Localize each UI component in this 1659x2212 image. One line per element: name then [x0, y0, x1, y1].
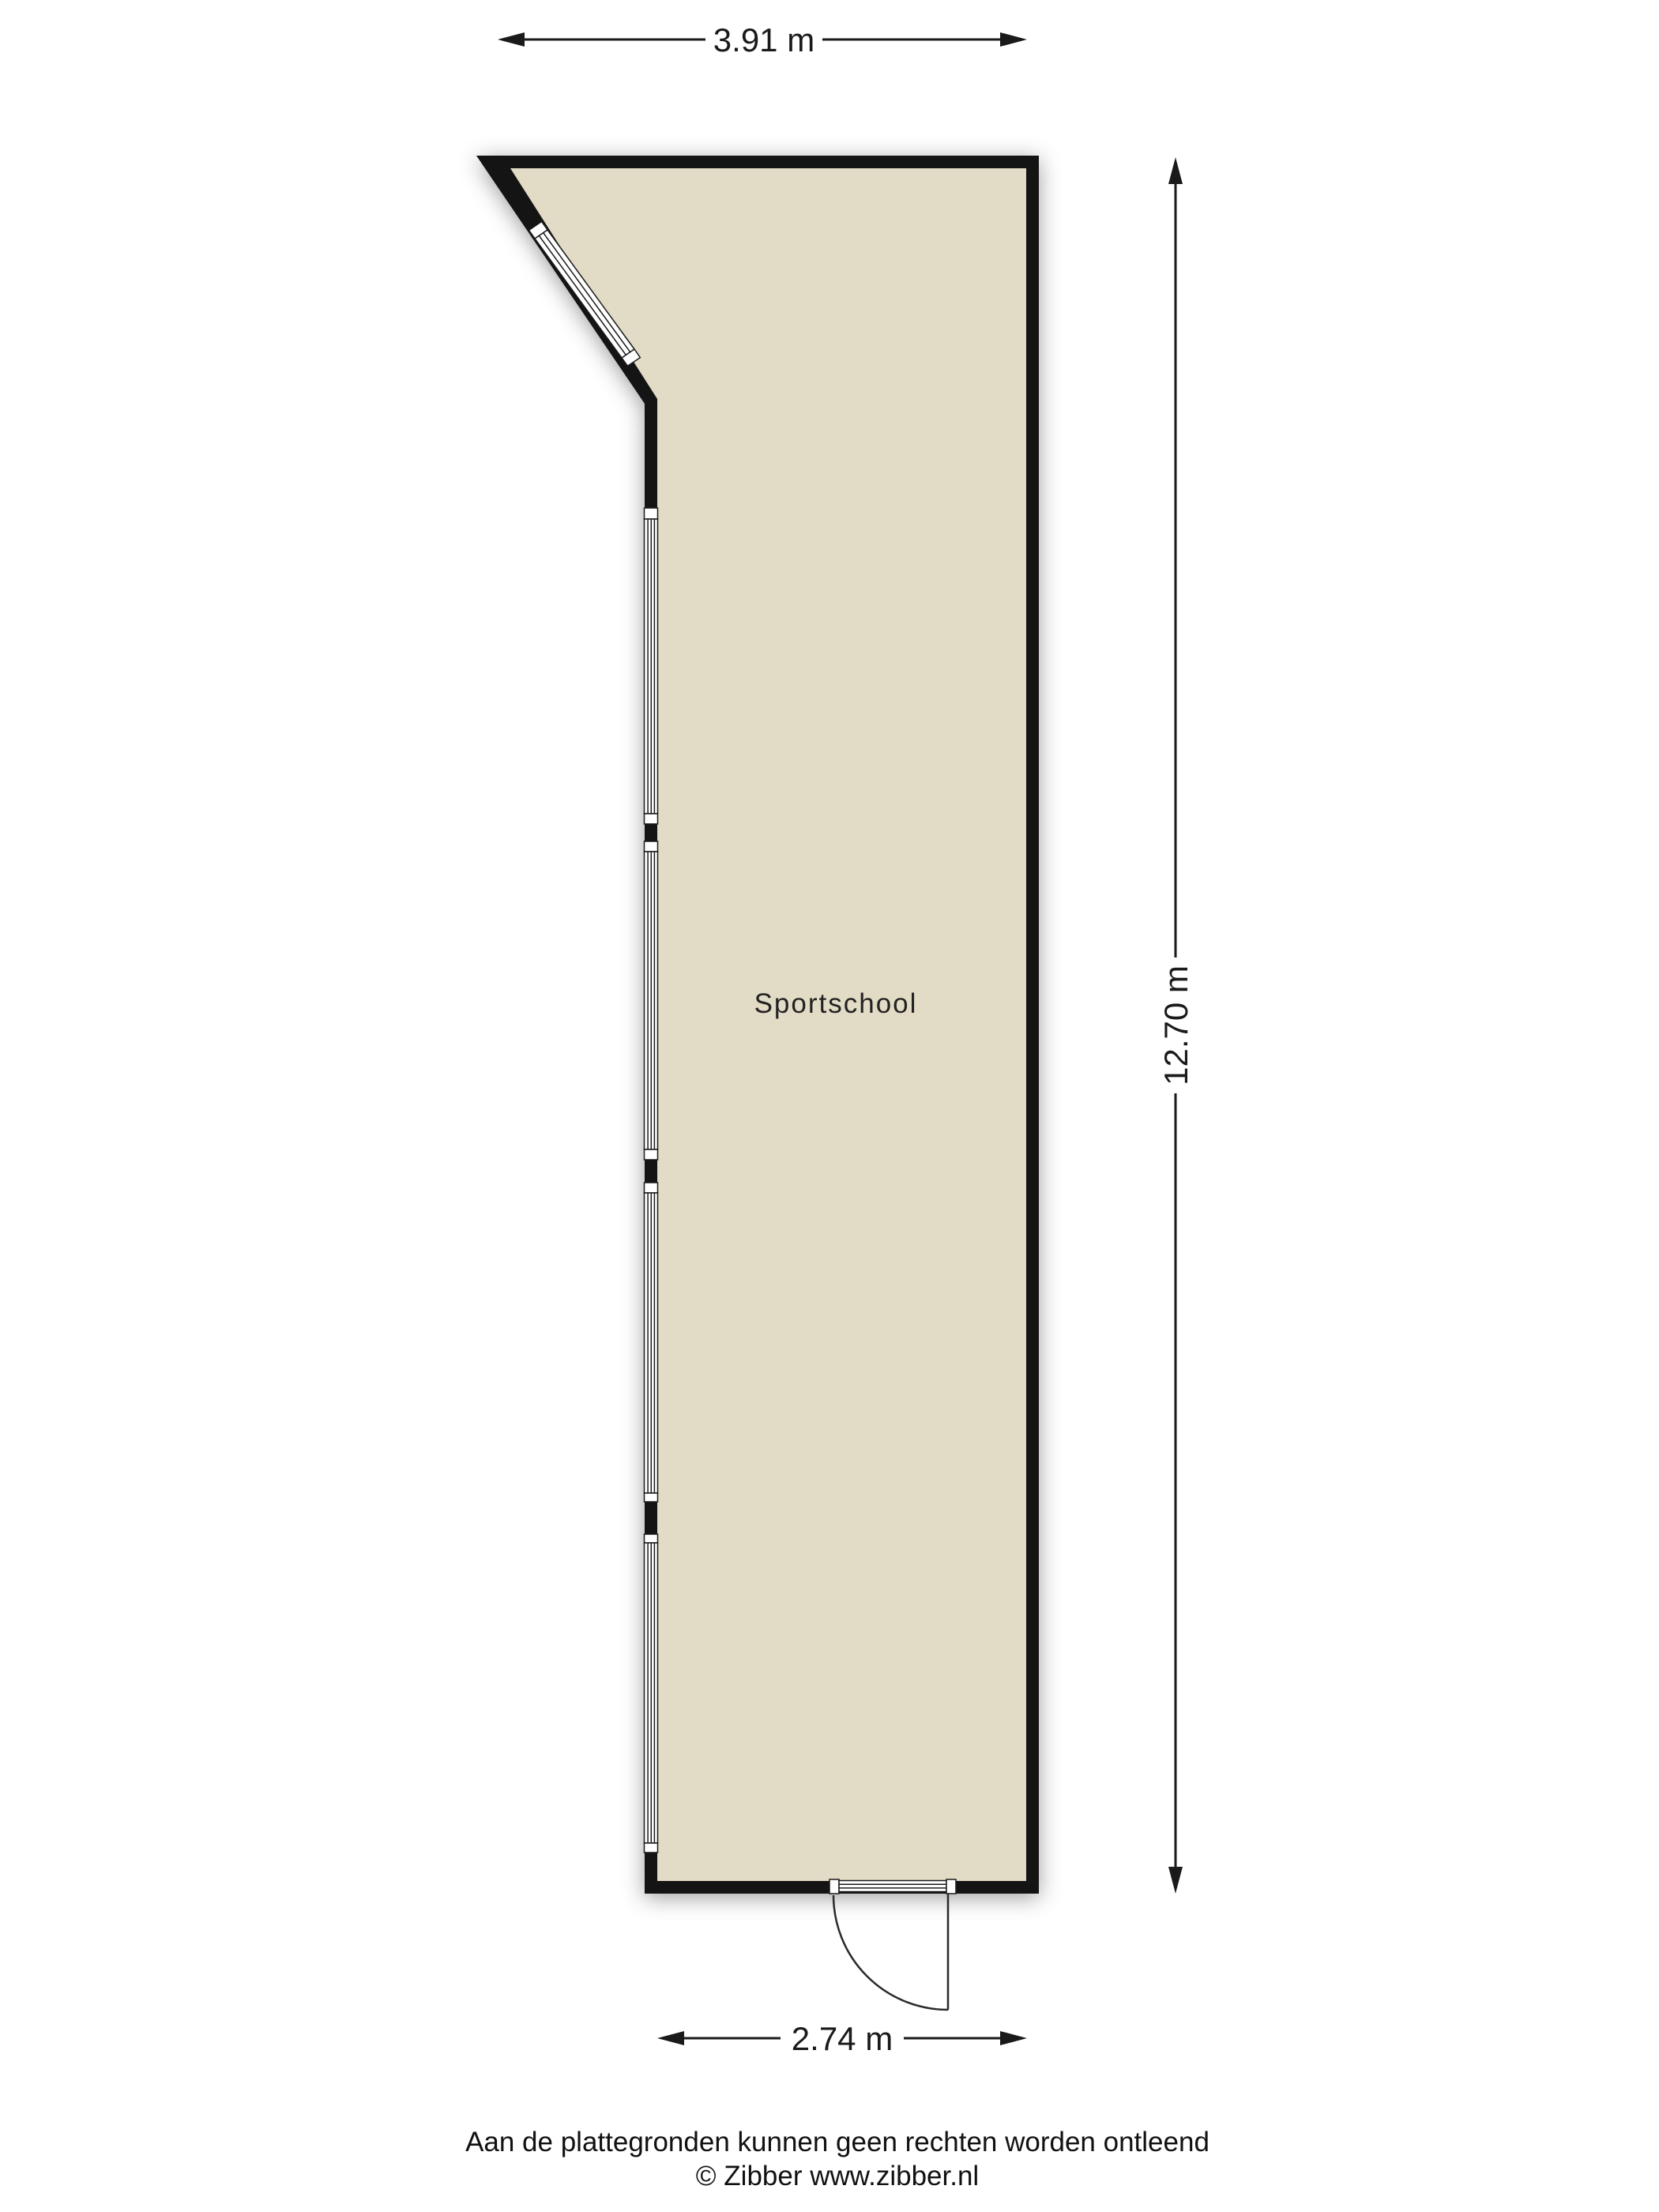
floorplan-page: Sportschool 3.91 m 12.70 m 2.74 m	[0, 0, 1659, 2212]
dimension-top-label: 3.91 m	[713, 21, 814, 58]
entrance-door	[829, 1879, 956, 2010]
door-swing-arc	[833, 1895, 948, 2010]
dimension-right-label: 12.70 m	[1157, 965, 1194, 1085]
window-left-3	[645, 1183, 658, 1502]
window-left-4	[645, 1534, 658, 1853]
window-left-2	[645, 841, 658, 1160]
arrowhead-left-icon	[498, 32, 525, 47]
dimension-top: 3.91 m	[498, 21, 1027, 58]
window-left-1	[645, 508, 658, 824]
dimension-bottom-label: 2.74 m	[792, 2020, 893, 2057]
footer-disclaimer: Aan de plattegronden kunnen geen rechten…	[465, 2127, 1209, 2157]
arrowhead-left-icon	[657, 2031, 684, 2045]
room-label: Sportschool	[754, 988, 918, 1019]
arrowhead-down-icon	[1168, 1867, 1183, 1894]
door-post-right	[946, 1879, 956, 1894]
arrowhead-up-icon	[1168, 157, 1183, 184]
footer: Aan de plattegronden kunnen geen rechten…	[465, 2127, 1209, 2191]
footer-copyright: © Zibber www.zibber.nl	[696, 2161, 979, 2191]
arrowhead-right-icon	[1000, 2031, 1027, 2045]
door-post-left	[829, 1879, 839, 1894]
arrowhead-right-icon	[1000, 32, 1027, 47]
dimension-right: 12.70 m	[1157, 157, 1194, 1894]
floorplan-svg: Sportschool 3.91 m 12.70 m 2.74 m	[0, 0, 1659, 2212]
door-sill	[839, 1881, 946, 1892]
room-floor	[510, 168, 1026, 1881]
dimension-bottom: 2.74 m	[657, 2020, 1027, 2057]
